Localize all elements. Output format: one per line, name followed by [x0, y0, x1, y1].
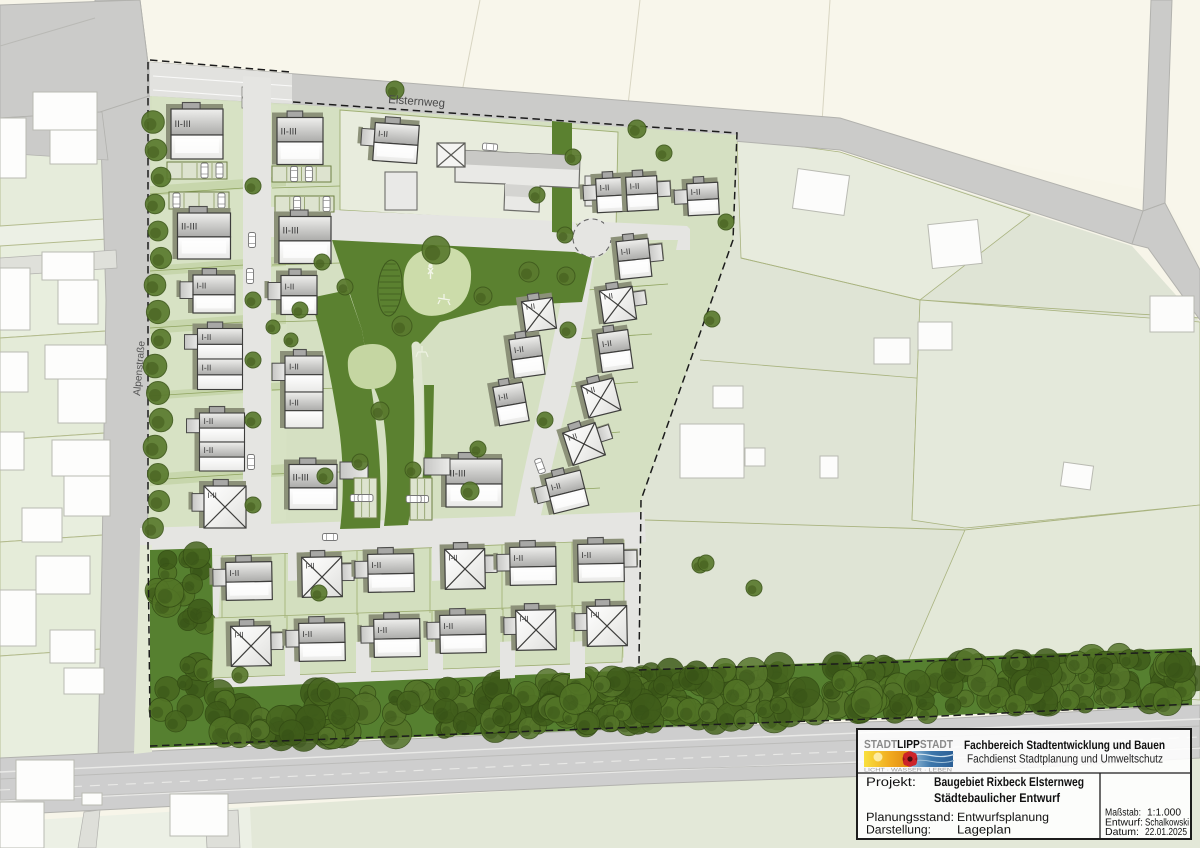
svg-text:I-II: I-II	[204, 416, 214, 426]
svg-text:I-II: I-II	[289, 362, 299, 372]
svg-text:I-II: I-II	[197, 281, 207, 291]
svg-text:Darstellung:: Darstellung:	[866, 823, 931, 837]
svg-text:I-II: I-II	[443, 621, 453, 631]
svg-text:I-II: I-II	[229, 568, 239, 578]
svg-text:I-II: I-II	[690, 187, 700, 198]
svg-text:I-II: I-II	[629, 181, 639, 192]
svg-text:Fachdienst Stadtplanung und Um: Fachdienst Stadtplanung und Umweltschutz	[967, 752, 1163, 766]
svg-text:I-II: I-II	[208, 491, 217, 500]
svg-text:I-II: I-II	[513, 553, 523, 563]
svg-text:I-II: I-II	[234, 630, 243, 639]
svg-text:II-III: II-III	[293, 473, 309, 484]
svg-text:I-II: I-II	[202, 363, 212, 373]
svg-text:I-II: I-II	[305, 561, 314, 570]
svg-text:I-II: I-II	[289, 398, 299, 408]
svg-text:I-II: I-II	[371, 560, 381, 570]
svg-text:II-III: II-III	[281, 126, 297, 137]
svg-text:Datum:: Datum:	[1105, 827, 1139, 838]
svg-text:I-II: I-II	[302, 629, 312, 639]
svg-text:I-II: I-II	[448, 553, 457, 562]
svg-text:Städtebaulicher Entwurf: Städtebaulicher Entwurf	[934, 791, 1061, 805]
svg-text:Lageplan: Lageplan	[957, 823, 1011, 837]
svg-text:Fachbereich Stadtentwicklung u: Fachbereich Stadtentwicklung und Bauen	[964, 738, 1165, 752]
svg-text:I-II: I-II	[590, 610, 599, 619]
svg-text:I-II: I-II	[601, 338, 612, 349]
svg-text:Baugebiet Rixbeck Elsternweg: Baugebiet Rixbeck Elsternweg	[934, 775, 1084, 789]
svg-text:I-II: I-II	[620, 246, 631, 257]
svg-text:I-II: I-II	[519, 614, 528, 623]
svg-text:I-II: I-II	[603, 291, 614, 301]
svg-text:I-II: I-II	[204, 445, 214, 455]
svg-text:I-II: I-II	[377, 625, 387, 635]
svg-text:II-III: II-III	[283, 225, 299, 236]
svg-text:22.01.2025: 22.01.2025	[1145, 827, 1187, 838]
svg-text:I-II: I-II	[513, 344, 524, 355]
svg-text:STADTLIPPSTADT: STADTLIPPSTADT	[864, 738, 953, 751]
svg-text:I-II: I-II	[525, 302, 536, 312]
svg-text:I-II: I-II	[378, 128, 389, 139]
svg-text:I-II: I-II	[599, 182, 609, 193]
svg-text:I-II: I-II	[285, 282, 295, 292]
svg-text:II-III: II-III	[181, 222, 197, 233]
svg-text:Projekt:: Projekt:	[866, 775, 916, 789]
svg-text:LICHT · WASSER · LEBEN: LICHT · WASSER · LEBEN	[864, 768, 952, 774]
svg-text:I-II: I-II	[581, 550, 591, 560]
svg-text:I-II: I-II	[497, 391, 509, 403]
svg-text:II-III: II-III	[175, 119, 191, 130]
svg-text:II-III: II-III	[450, 468, 466, 479]
svg-text:I-II: I-II	[202, 332, 212, 342]
